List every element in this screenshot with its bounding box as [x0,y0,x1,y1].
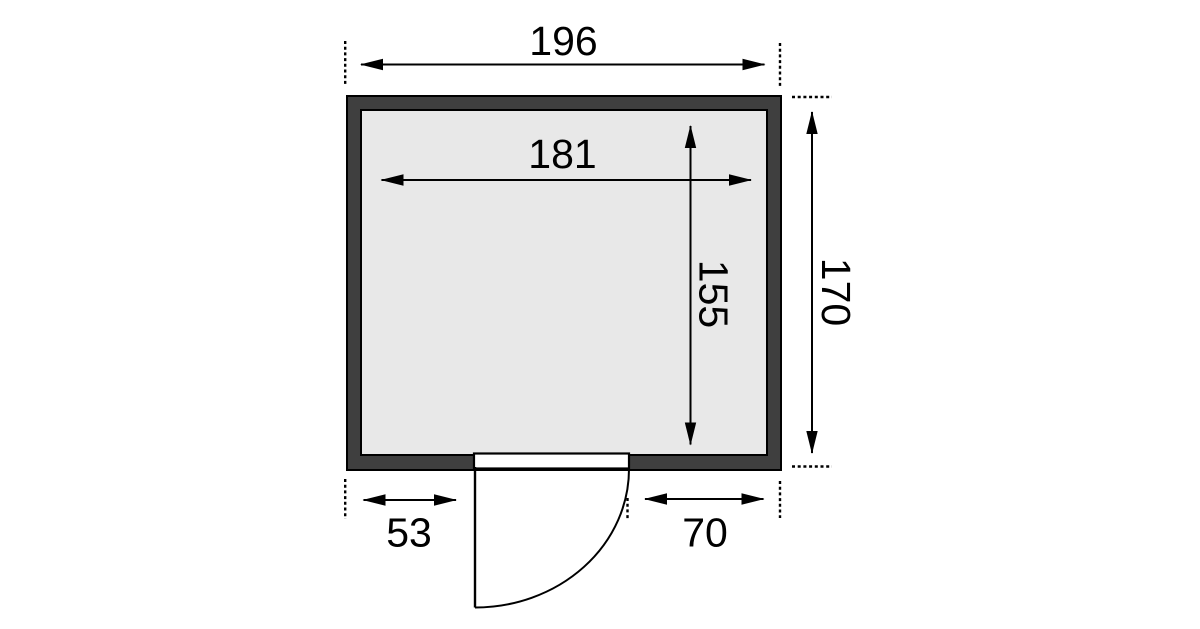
svg-text:53: 53 [386,510,432,556]
svg-text:70: 70 [682,510,728,556]
svg-text:181: 181 [528,131,596,177]
svg-text:196: 196 [529,18,597,64]
svg-text:170: 170 [813,258,859,326]
svg-text:155: 155 [691,260,737,328]
